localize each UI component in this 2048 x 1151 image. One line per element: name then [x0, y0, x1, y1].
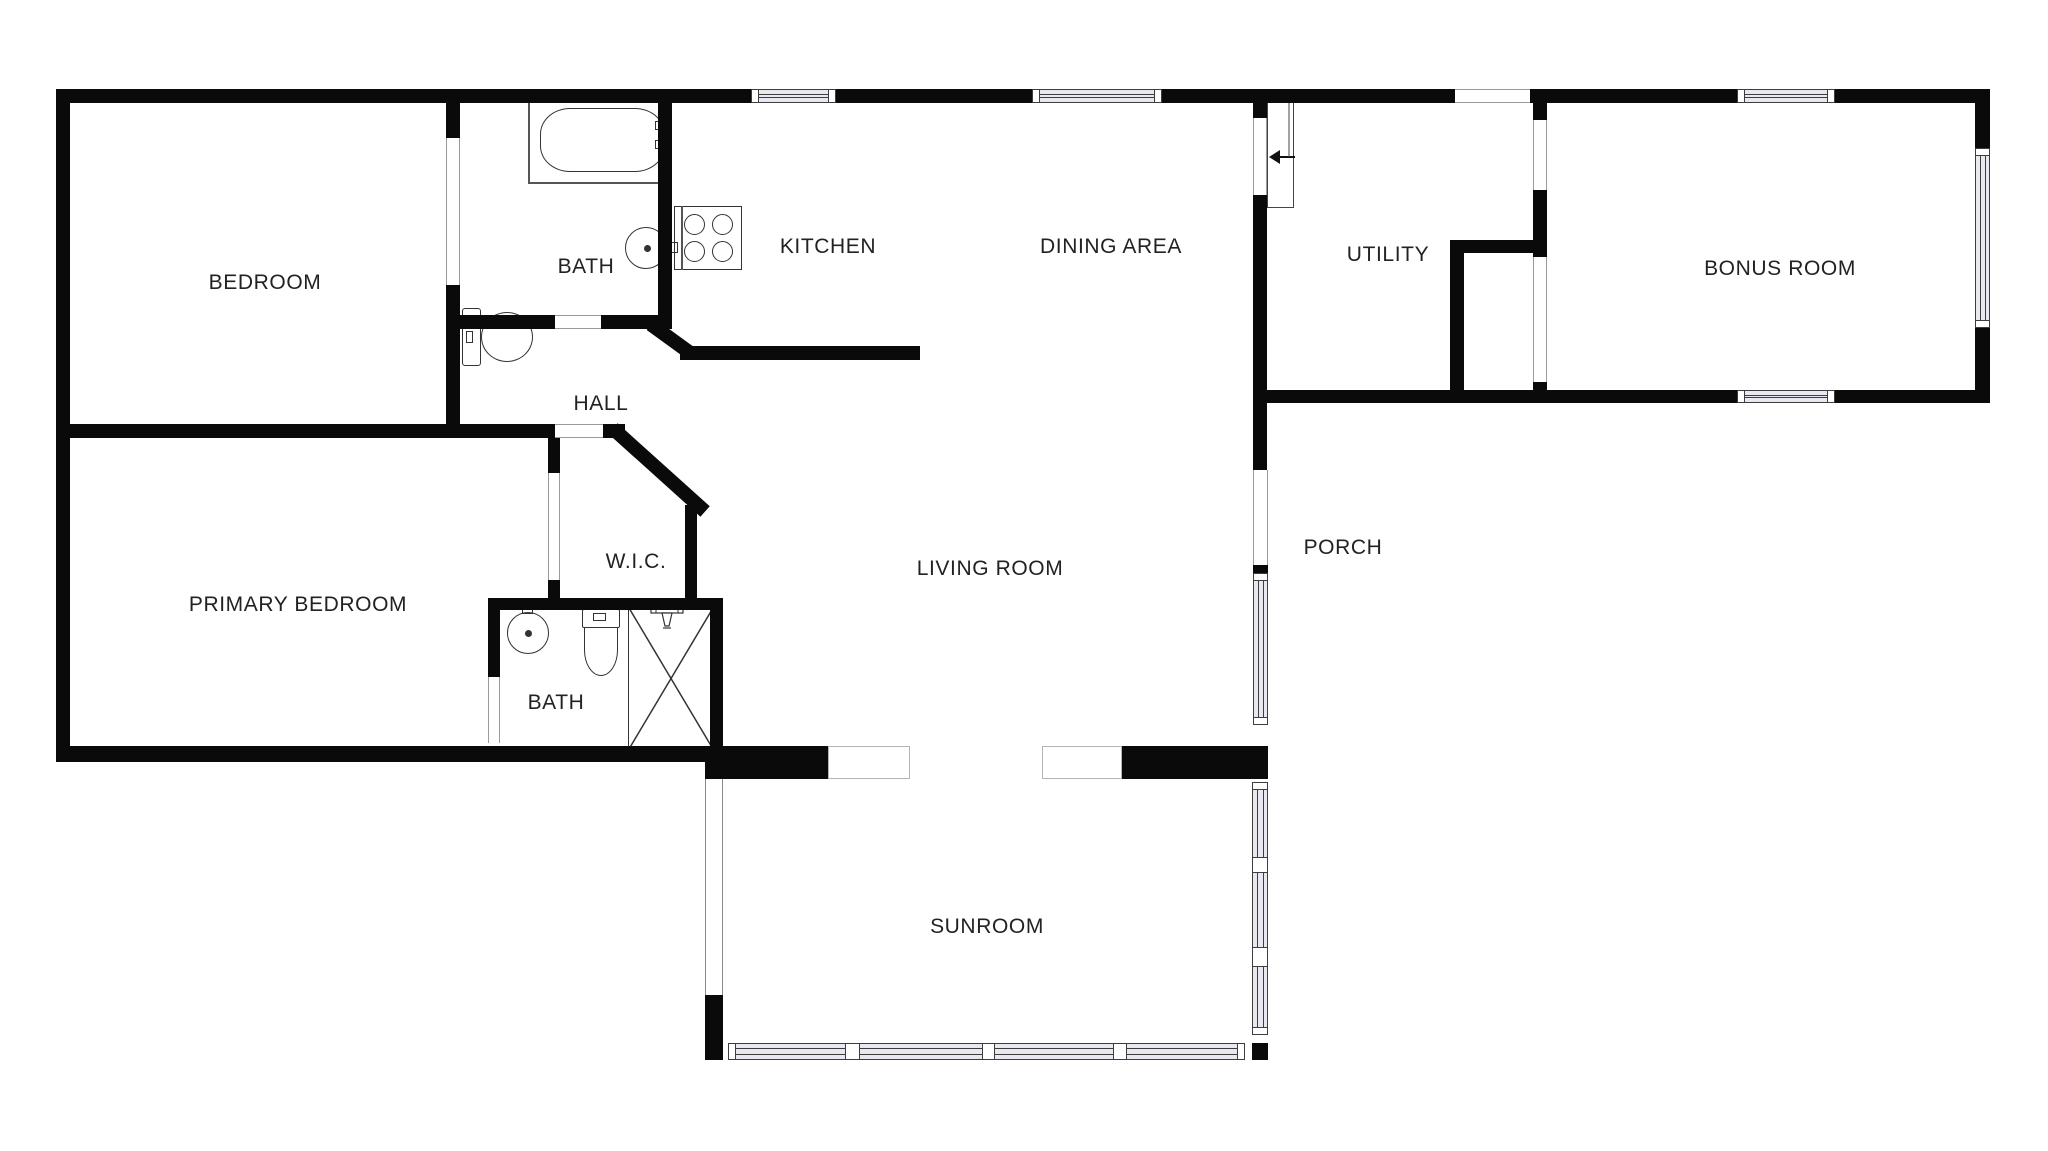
wall	[685, 505, 697, 598]
wall	[1975, 103, 1990, 148]
window-mullion	[1252, 1027, 1268, 1035]
window-mullion	[1113, 1043, 1127, 1060]
wall	[548, 438, 560, 473]
door-opening	[488, 677, 500, 743]
door-opening	[1455, 89, 1530, 103]
wall	[1252, 1043, 1268, 1060]
wall	[1450, 253, 1464, 390]
stove-edge-line	[681, 206, 683, 270]
room-label-hall: HALL	[574, 392, 629, 416]
door-opening	[1253, 470, 1268, 565]
wall	[446, 285, 460, 424]
door-panel	[1042, 746, 1122, 779]
wall	[710, 598, 723, 748]
room-label-bonus-room: BONUS ROOM	[1704, 257, 1856, 281]
room-label-bath-top: BATH	[558, 255, 615, 279]
window-mullion	[1975, 320, 1990, 328]
window-mullion	[1827, 390, 1835, 403]
window-mullion	[1032, 89, 1040, 103]
wall	[488, 610, 500, 677]
window-mullion	[1253, 573, 1268, 581]
window-mullion	[828, 89, 836, 103]
wall	[705, 995, 723, 1060]
door-opening	[1253, 118, 1267, 195]
wall	[658, 103, 672, 329]
wall	[56, 746, 740, 762]
window-mullion	[1737, 89, 1745, 103]
window	[1975, 148, 1990, 328]
sink-drain	[525, 630, 532, 637]
sink-drain	[644, 245, 651, 252]
wall-diagonal	[608, 423, 710, 516]
floor-plan: BEDROOM BATH KITCHEN DINING AREA UTILITY…	[0, 0, 2048, 1151]
window-mullion	[1252, 857, 1268, 873]
wall	[488, 598, 710, 610]
window-mullion	[845, 1043, 860, 1060]
stove-burner	[684, 241, 705, 262]
staircase	[1267, 103, 1294, 208]
wall	[1122, 746, 1268, 779]
window-mullion	[1827, 89, 1835, 103]
wall	[1533, 190, 1547, 257]
stove-burner	[712, 214, 733, 235]
door-opening	[1533, 257, 1547, 382]
window-mullion	[751, 89, 759, 103]
window-mullion	[982, 1043, 995, 1060]
window-mullion	[1252, 947, 1268, 967]
window	[1253, 573, 1268, 725]
door-opening	[446, 138, 460, 285]
bathtub	[540, 108, 665, 172]
wall	[460, 315, 555, 329]
tub-alcove-line	[528, 103, 530, 183]
wall	[1530, 89, 1737, 103]
window	[1737, 390, 1835, 403]
window	[1252, 782, 1268, 1035]
wall	[1975, 328, 1990, 390]
wall	[548, 580, 560, 598]
toilet-bowl	[584, 628, 618, 676]
window	[751, 89, 836, 103]
window-mullion	[1737, 390, 1745, 403]
wall	[1253, 103, 1267, 118]
window-mullion	[1154, 89, 1162, 103]
window	[1737, 89, 1835, 103]
room-label-bedroom: BEDROOM	[209, 271, 322, 295]
wall	[1533, 382, 1547, 390]
wall	[680, 346, 920, 360]
wall	[1253, 565, 1268, 573]
room-label-kitchen: KITCHEN	[780, 235, 876, 259]
window-mullion	[728, 1043, 736, 1060]
wall	[1162, 89, 1455, 103]
stove-burner	[684, 214, 705, 235]
window	[1032, 89, 1162, 103]
tub-alcove-line	[528, 182, 672, 184]
wall	[1835, 390, 1990, 403]
stove-burner	[712, 241, 733, 262]
wall	[1533, 103, 1547, 120]
wall	[446, 103, 460, 138]
wall	[56, 89, 751, 103]
window-mullion	[1237, 1043, 1245, 1060]
door-opening	[555, 424, 603, 438]
window-mullion	[1253, 717, 1268, 725]
stove	[674, 206, 742, 270]
room-label-porch: PORCH	[1304, 536, 1383, 560]
screen-wall	[705, 779, 723, 995]
window-mullion	[1252, 782, 1268, 790]
room-label-sunroom: SUNROOM	[930, 915, 1044, 939]
door-opening	[1533, 120, 1547, 190]
wall	[705, 746, 828, 779]
room-label-dining-area: DINING AREA	[1040, 235, 1182, 259]
wall	[1835, 89, 1990, 103]
door-panel	[828, 746, 910, 779]
door-opening	[555, 315, 601, 329]
room-label-living-room: LIVING ROOM	[917, 557, 1064, 581]
toilet-flush-button	[593, 613, 606, 621]
window-mullion	[1975, 148, 1990, 156]
wall	[1253, 390, 1737, 403]
toilet-flush-button	[466, 331, 473, 343]
wall	[1253, 195, 1267, 470]
door-opening	[548, 473, 560, 580]
wall	[56, 424, 555, 438]
wall	[836, 89, 1032, 103]
room-label-primary-bedroom: PRIMARY BEDROOM	[189, 593, 407, 617]
room-label-bath-lower: BATH	[528, 691, 585, 715]
room-label-wic: W.I.C.	[606, 550, 667, 574]
room-label-utility: UTILITY	[1347, 243, 1429, 267]
